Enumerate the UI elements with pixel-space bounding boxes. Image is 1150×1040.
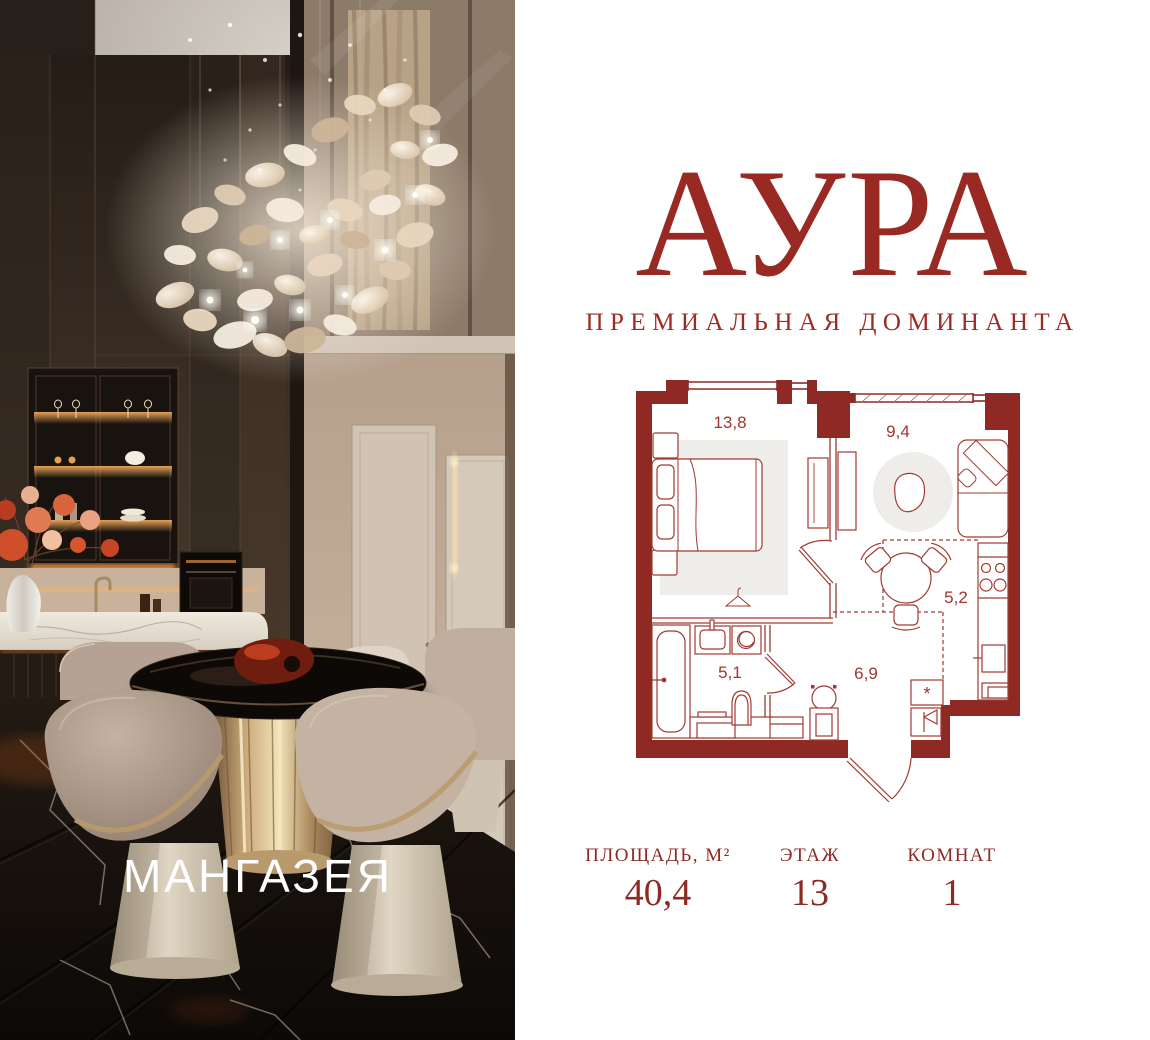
washer-symbol: * [923,684,930,704]
hallway-area-label: 6,9 [854,664,878,683]
stat-rooms-label: КОМНАТ [907,845,996,867]
room-bedroom [652,433,788,606]
developer-watermark: МАНГАЗЕЯ [123,849,393,903]
room-living [808,440,1009,537]
project-logo: АУРА [515,146,1150,301]
project-tagline: ПРЕМИАЛЬНАЯ ДОМИНАНТА [515,309,1150,337]
base-cabinet [982,645,1005,672]
room-bathroom [652,620,773,738]
wall-light [452,455,457,575]
stat-area-value: 40,4 [585,871,731,915]
stat-rooms-value: 1 [907,871,996,915]
room-hallway [770,680,943,740]
stat-rooms: КОМНАТ 1 [907,845,996,915]
ceiling-light [812,686,836,710]
floor-plan-drawing: 13,8 9,4 5,2 5,1 6,9 * [618,375,1038,815]
tv-console [808,458,828,528]
living-area-label: 9,4 [886,422,910,441]
stat-floor: ЭТАЖ 13 [780,845,840,915]
bench [770,717,803,738]
washing-machine [732,626,761,654]
bedroom-area-label: 13,8 [713,413,746,432]
floor-plan: 13,8 9,4 5,2 5,1 6,9 * [618,375,1038,815]
bathroom-area-label: 5,1 [718,663,742,682]
interior-photo: МАНГАЗЕЯ [0,0,515,1040]
brochure-page: МАНГАЗЕЯ АУРА ПРЕМИАЛЬНАЯ ДОМИНАНТА [0,0,1150,1040]
stat-area-label: ПЛОЩАДЬ, М² [585,845,731,867]
stat-floor-value: 13 [780,871,840,915]
stat-area: ПЛОЩАДЬ, М² 40,4 [585,845,731,915]
coffee-table [895,473,925,511]
kitchen-area-label: 5,2 [944,588,968,607]
stat-floor-label: ЭТАЖ [780,845,840,867]
